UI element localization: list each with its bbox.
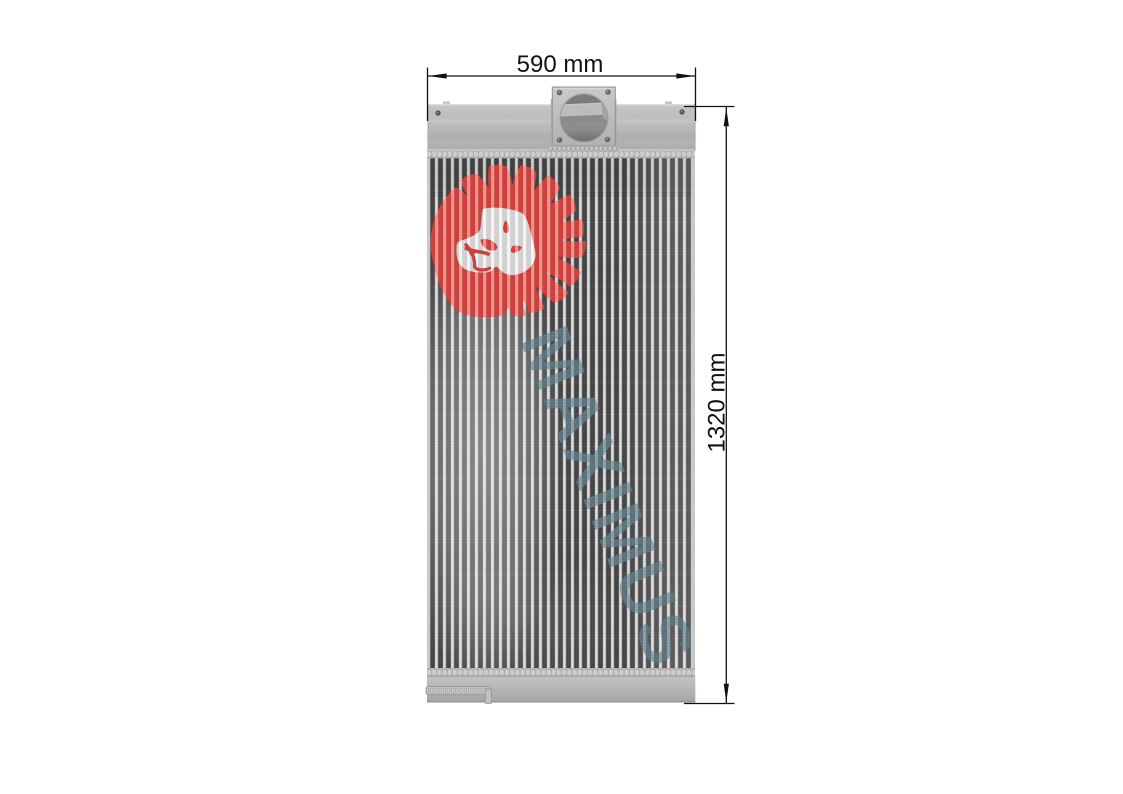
svg-text:1320 mm: 1320 mm bbox=[703, 352, 730, 452]
svg-text:590 mm: 590 mm bbox=[517, 51, 604, 78]
